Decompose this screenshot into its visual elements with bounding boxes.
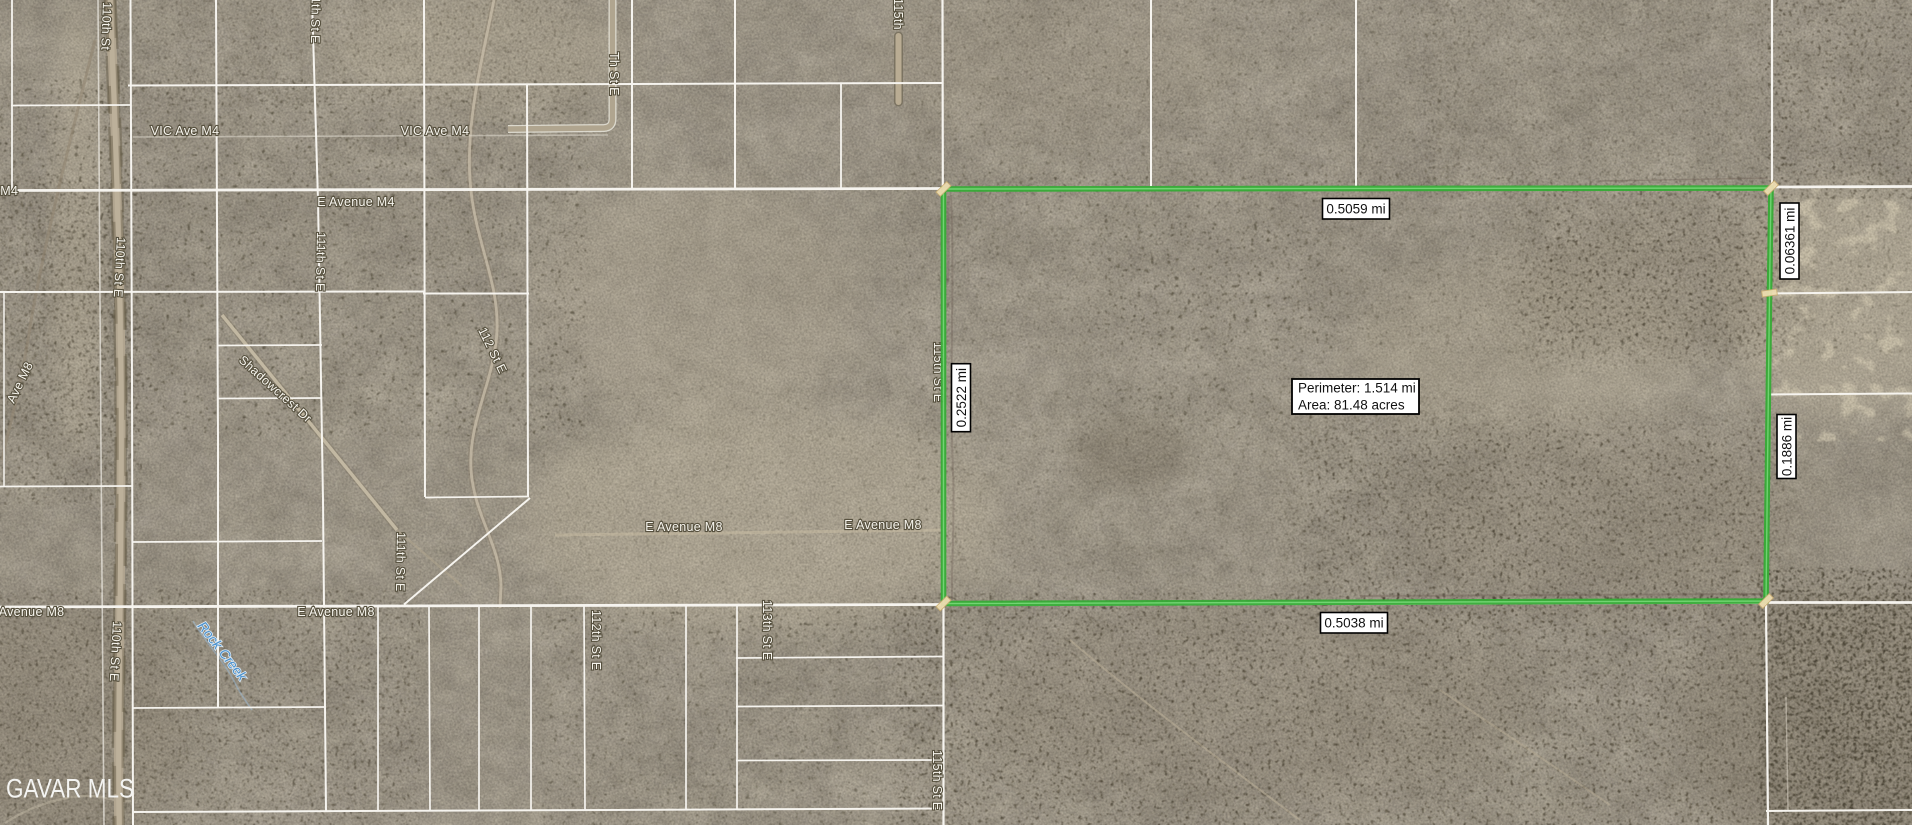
svg-text:111th St E: 111th St E [393, 532, 408, 592]
svg-text:E Avenue M8: E Avenue M8 [0, 605, 64, 619]
svg-text:115th: 115th [891, 0, 905, 30]
svg-text:Th St E: Th St E [607, 52, 621, 96]
svg-text:ue M4: ue M4 [0, 184, 18, 198]
svg-text:113th St E: 113th St E [760, 600, 774, 660]
svg-text:VIC Ave M4: VIC Ave M4 [151, 124, 220, 138]
svg-text:0.06361 mi: 0.06361 mi [1782, 208, 1797, 275]
svg-text:GAVAR MLS: GAVAR MLS [6, 774, 134, 804]
svg-text:112th St E: 112th St E [589, 610, 603, 670]
svg-text:111th St E: 111th St E [308, 0, 323, 44]
svg-text:110th St: 110th St [98, 2, 114, 51]
svg-text:111th St E: 111th St E [313, 232, 328, 292]
svg-text:VIC Ave M4: VIC Ave M4 [401, 124, 470, 138]
svg-text:0.5059 mi: 0.5059 mi [1326, 202, 1385, 217]
svg-text:0.2522 mi: 0.2522 mi [954, 368, 969, 427]
svg-text:E Avenue M8: E Avenue M8 [844, 518, 921, 532]
svg-text:E Avenue M8: E Avenue M8 [297, 605, 374, 619]
svg-text:0.5038 mi: 0.5038 mi [1324, 616, 1383, 631]
svg-text:Area: 81.48 acres: Area: 81.48 acres [1298, 398, 1405, 413]
svg-text:E Avenue M4: E Avenue M4 [317, 195, 394, 209]
svg-text:115th St E: 115th St E [930, 750, 944, 810]
svg-text:E Avenue M8: E Avenue M8 [645, 520, 722, 534]
svg-text:Perimeter: 1.514 mi: Perimeter: 1.514 mi [1298, 381, 1416, 396]
svg-text:0.1886 mi: 0.1886 mi [1779, 417, 1794, 476]
